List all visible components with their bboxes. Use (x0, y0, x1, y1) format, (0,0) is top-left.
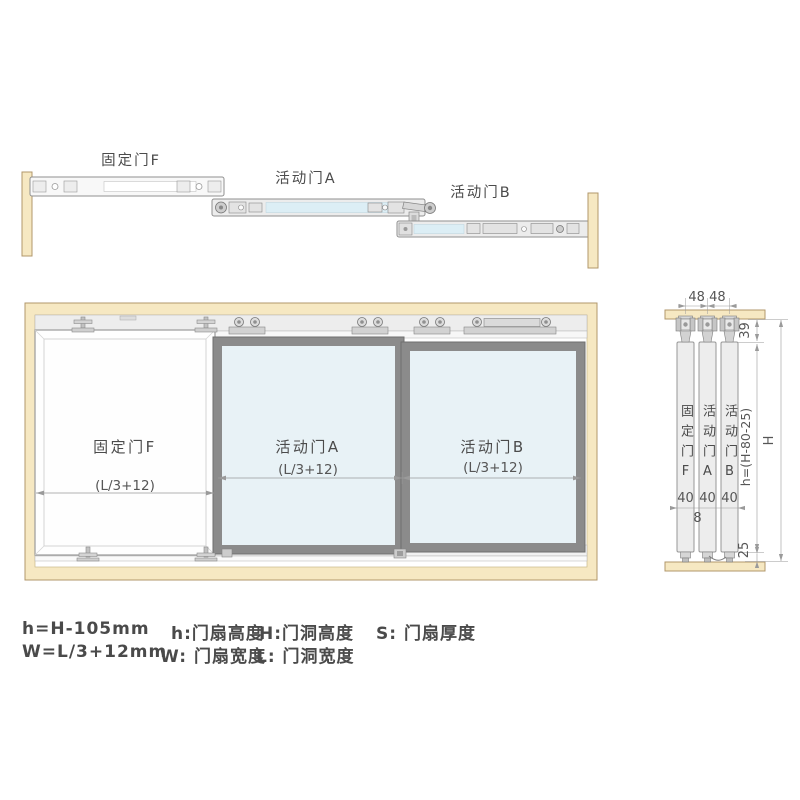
panel-f-thickness: 40 (677, 491, 694, 506)
S-definition: S: 门扇厚度 (376, 619, 476, 644)
side-panel-a-label: 活动门A (699, 404, 716, 486)
dim-h (755, 344, 759, 551)
roller-icon (557, 226, 564, 233)
front-view: 固定门F (L/3+12) 活动门A (L/3+12) 活动门B (L/3+12… (25, 303, 597, 580)
track-a-label: 活动门A (275, 170, 336, 187)
width-formula: W=L/3+12mm (22, 642, 167, 662)
side-panel-b-label: 活动门B (721, 404, 738, 486)
dim-25-text: 25 (737, 542, 752, 559)
front-door-b-label: 活动门B (460, 438, 525, 456)
hanger-icon (698, 316, 717, 342)
front-door-f-label: 固定门F (93, 438, 157, 456)
dim-H-text: H (762, 436, 777, 446)
dim-39 (755, 320, 759, 341)
front-door-a-width: (L/3+12) (278, 462, 338, 478)
foot-icon (681, 552, 691, 558)
front-door-b-width: (L/3+12) (463, 460, 523, 476)
W-definition: W: 门扇宽度 (160, 642, 266, 667)
h-definition: h:门扇高度 (171, 619, 264, 644)
dim-8-text: 8 (693, 511, 701, 526)
bracket-hole-icon (52, 184, 58, 190)
panel-b-thickness: 40 (721, 491, 738, 506)
front-door-a-label: 活动门A (275, 438, 340, 456)
side-panel-f-label: 固定门F (677, 404, 694, 486)
side-feet (681, 552, 735, 562)
dim-h-text: h=(H-80-25) (738, 408, 753, 486)
L-definition: L: 门洞宽度 (256, 642, 355, 667)
side-bottom-board (665, 562, 765, 571)
H-definition: H:门洞高度 (259, 619, 354, 644)
track-b-label: 活动门B (450, 184, 511, 201)
dim-H (779, 320, 783, 561)
front-door-f-width: (L/3+12) (95, 478, 155, 494)
floor-guide-icon (222, 549, 232, 557)
right-wood-post (588, 193, 598, 268)
side-hangers (676, 316, 739, 342)
hanger-icon (720, 316, 739, 342)
dim-39-text: 39 (738, 322, 753, 339)
dim-48-48-text: 48 48 (688, 290, 725, 305)
exploded-track-assemblies: 固定门F 活动门A (22, 152, 598, 268)
drawing-svg: 固定门F 活动门A (0, 0, 800, 800)
bracket-hole-icon (196, 184, 202, 190)
track-f-label: 固定门F (101, 152, 161, 169)
technical-drawing-page: 固定门F 活动门A (0, 0, 800, 800)
height-formula: h=H-105mm (22, 619, 150, 639)
hanger-icon (676, 316, 695, 342)
track-active-door-b (397, 221, 590, 237)
panel-a-thickness: 40 (699, 491, 716, 506)
track-fixed-door-f (30, 177, 224, 196)
